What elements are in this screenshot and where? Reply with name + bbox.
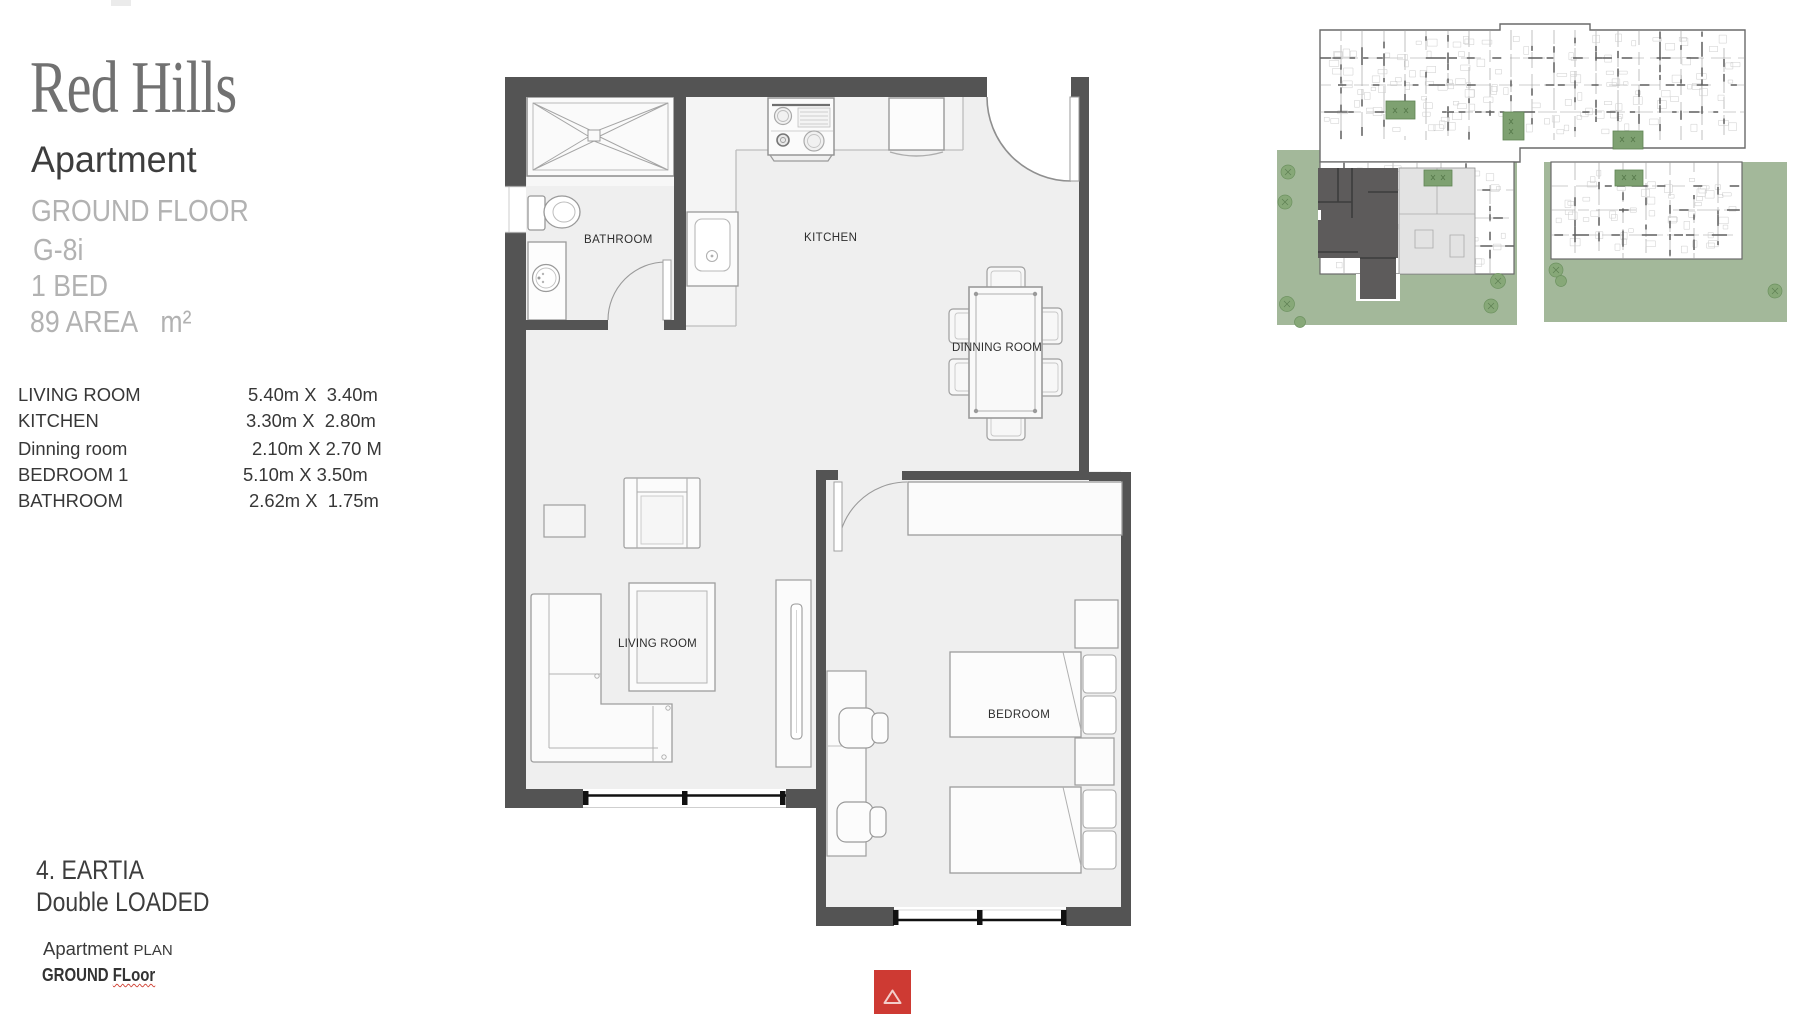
svg-text:KITCHEN: KITCHEN bbox=[804, 232, 857, 244]
svg-text:LIVING ROOM: LIVING ROOM bbox=[618, 638, 697, 650]
svg-text:DINNING ROOM: DINNING ROOM bbox=[952, 342, 1042, 354]
svg-text:BEDROOM: BEDROOM bbox=[988, 709, 1050, 721]
svg-text:BATHROOM: BATHROOM bbox=[584, 234, 653, 246]
